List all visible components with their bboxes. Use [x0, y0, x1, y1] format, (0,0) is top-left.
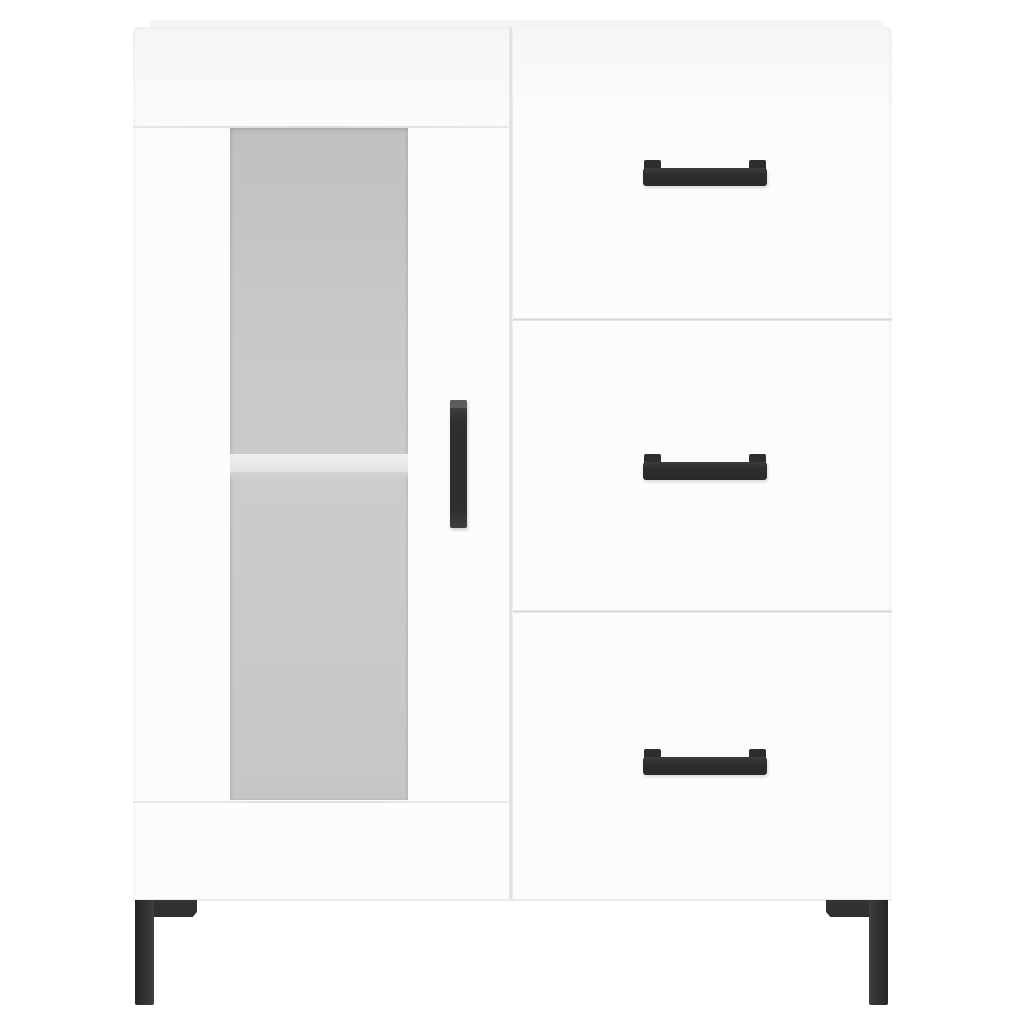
handle-bar: [643, 757, 767, 775]
door-handle: [450, 400, 467, 528]
cabinet-door-section: [133, 27, 509, 900]
product-photo-canvas: [0, 0, 1024, 1024]
glass-shelf: [230, 454, 408, 472]
handle-bar: [643, 168, 767, 186]
handle-bar: [643, 462, 767, 480]
right-leg: [869, 900, 888, 1005]
glass-shelf-shadow: [230, 472, 408, 481]
cabinet-drawer-section: [513, 27, 892, 900]
glass-panel: [230, 128, 408, 800]
drawer-handle: [643, 454, 767, 480]
door-handle-mount: [450, 400, 467, 408]
cabinet-bottom-edge: [133, 899, 892, 901]
left-leg: [135, 900, 154, 1005]
drawer-handle: [643, 749, 767, 775]
drawer-seam: [513, 318, 892, 321]
drawer-handle: [643, 160, 767, 186]
drawer-seam: [513, 610, 892, 613]
door-bottom-seam: [133, 801, 509, 803]
